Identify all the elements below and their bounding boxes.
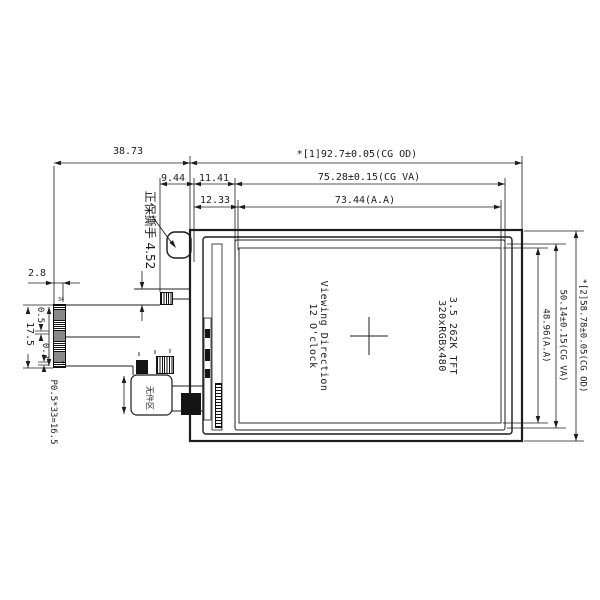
stiffener-pad: [181, 393, 201, 415]
panel-spec-text: 3.5 262K TFT 320xRGBx480: [431, 278, 463, 394]
fpc-contact-fingers: [53, 304, 66, 368]
dim-pin-pitch-label: P0.5*33=16.5: [46, 372, 58, 452]
dim-0-5-label: 0.5: [35, 301, 45, 329]
dim-cg-od-height-label: *[2]58.78±0.05(CG OD): [577, 261, 588, 411]
dim-cg-va-width-label: 75.28±0.15(CG VA): [289, 172, 449, 183]
fpc-fold-bend: [156, 356, 174, 374]
tft-lcd-engineering-drawing: 38.73 *[1]92.7±0.05(CG OD) 9.44 11.41 75…: [0, 0, 600, 600]
driver-ic-mark: [205, 349, 210, 361]
fpc-connector-block: [136, 360, 148, 374]
driver-ic-mark: [205, 329, 210, 338]
tear-tab-annotation: 正保撕手 4.52: [139, 170, 155, 290]
capacitor-component: [160, 292, 173, 305]
panel-view-line1: Viewing Direction: [318, 276, 329, 396]
panel-spec-line2: 320xRGBx480: [436, 278, 447, 394]
dim-12-33-label: 12.33: [193, 195, 237, 206]
dim-0-3-label: 0.3: [40, 337, 50, 365]
panel-viewing-direction-text: Viewing Direction 12 O'clock: [302, 276, 334, 396]
driver-ic-mark: [205, 369, 210, 378]
dim-offset-left-label: 38.73: [103, 146, 153, 157]
panel-view-line2: 12 O'clock: [307, 276, 318, 396]
dim-cg-od-width-label: *[1]92.7±0.05(CG OD): [277, 149, 437, 160]
bonding-pad-strip: [215, 383, 222, 428]
panel-spec-line1: 3.5 262K TFT: [447, 278, 458, 394]
pin-number-last: 34: [56, 298, 66, 303]
dim-cg-va-height-label: 50.14±0.15(CG VA): [557, 275, 568, 397]
drawing-linework: [0, 0, 600, 600]
dim-fpc-width-label: 2.8: [24, 268, 50, 279]
pin-number-first: 1: [59, 362, 67, 367]
dim-aa-height-label: 48.96(A.A): [540, 294, 551, 378]
dim-9-44-label: 9.44: [152, 173, 194, 184]
dim-aa-width-label: 73.44(A.A): [303, 195, 427, 206]
dim-connector-height-label: 17.5: [23, 314, 35, 354]
keepout-area-label: 无件区: [145, 384, 155, 412]
dim-11-41-label: 11.41: [192, 173, 236, 184]
